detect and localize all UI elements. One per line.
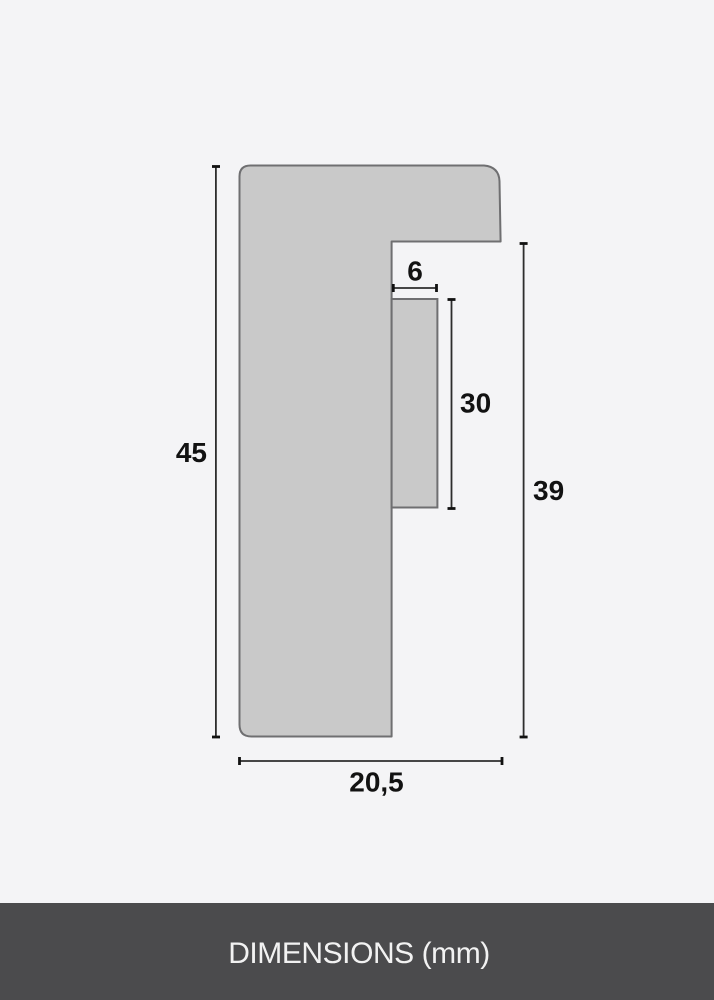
svg-text:39: 39 (533, 475, 564, 506)
svg-text:6: 6 (407, 256, 423, 287)
svg-text:30: 30 (460, 388, 491, 419)
svg-text:45: 45 (176, 437, 207, 468)
svg-text:20,5: 20,5 (349, 767, 404, 798)
svg-text:DIMENSIONS (mm): DIMENSIONS (mm) (228, 937, 490, 970)
